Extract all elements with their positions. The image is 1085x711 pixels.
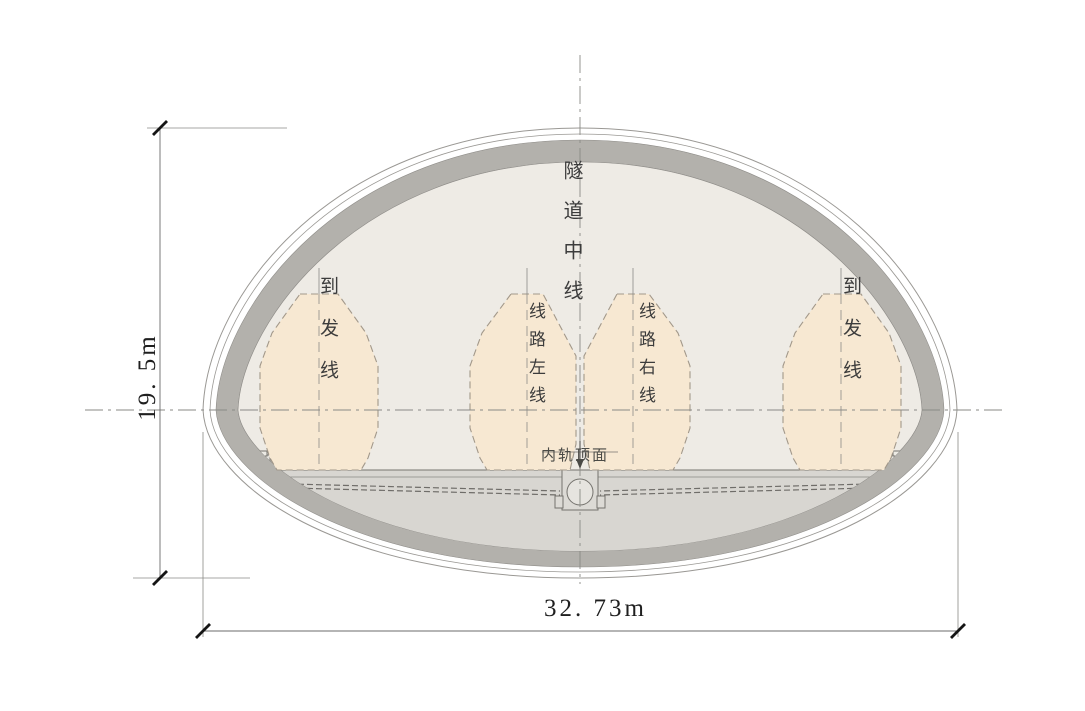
central-drain-tab-right — [597, 496, 605, 508]
label-line-left: 线路左线 — [523, 302, 548, 414]
label-arrival-departure-right: 到发线 — [837, 276, 864, 402]
central-drain-tab-left — [555, 496, 563, 508]
dimension-height-value: 19. 5m — [133, 327, 163, 427]
label-rail-top-surface: 内轨顶面 — [541, 444, 609, 465]
tunnel-cross-section-diagram: 隧道中线 到发线 线路左线 线路右线 到发线 内轨顶面 19. 5m 32. 7… — [0, 0, 1085, 711]
label-line-right: 线路右线 — [633, 302, 658, 414]
label-tunnel-centerline: 隧道中线 — [557, 160, 586, 320]
label-arrival-departure-left: 到发线 — [314, 276, 341, 402]
dimension-width-value: 32. 73m — [518, 595, 673, 623]
